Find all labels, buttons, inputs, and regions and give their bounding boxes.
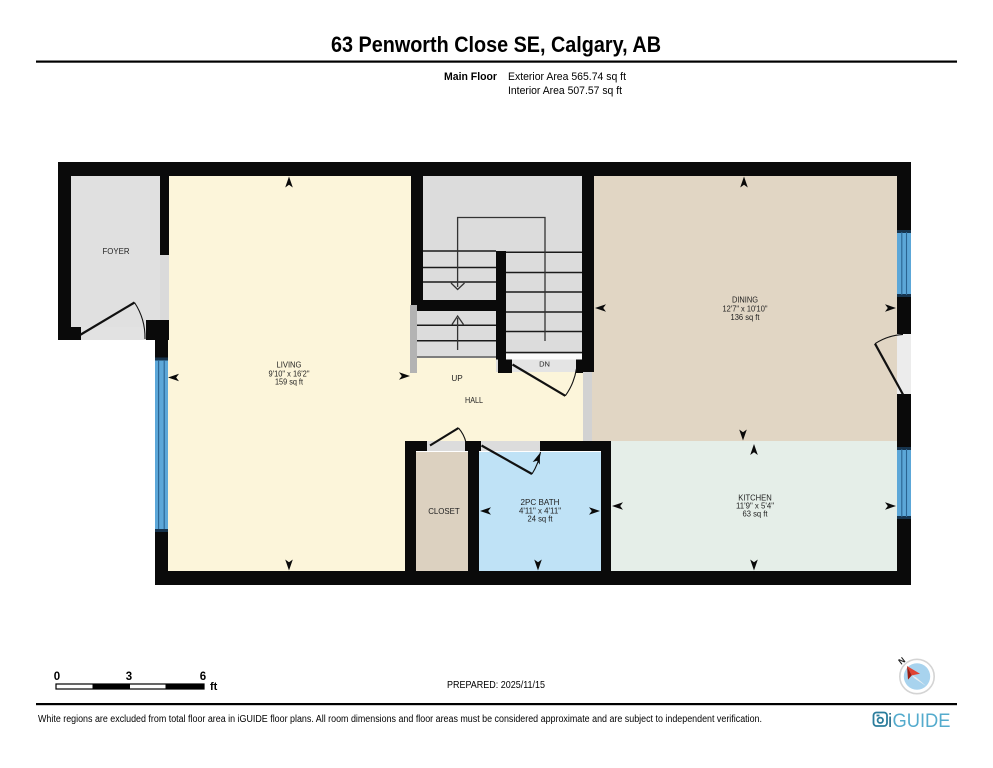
svg-text:136 sq ft: 136 sq ft: [731, 313, 761, 322]
svg-text:159 sq ft: 159 sq ft: [275, 378, 304, 387]
svg-text:6: 6: [200, 671, 206, 683]
svg-text:63 Penworth Close SE, Calgary,: 63 Penworth Close SE, Calgary, AB: [331, 32, 661, 57]
svg-text:White regions are excluded fro: White regions are excluded from total fl…: [38, 714, 762, 725]
svg-text:UP: UP: [451, 374, 463, 383]
svg-text:Exterior Area 565.74 sq ft: Exterior Area 565.74 sq ft: [508, 71, 626, 83]
svg-text:3: 3: [126, 671, 132, 683]
svg-text:0: 0: [54, 671, 60, 683]
svg-text:PREPARED: 2025/11/15: PREPARED: 2025/11/15: [447, 679, 545, 691]
svg-text:ft: ft: [210, 681, 218, 693]
svg-text:63 sq ft: 63 sq ft: [743, 510, 769, 519]
svg-text:FOYER: FOYER: [103, 247, 130, 256]
svg-text:CLOSET: CLOSET: [428, 507, 460, 516]
svg-text:GUIDE: GUIDE: [893, 710, 951, 732]
svg-text:HALL: HALL: [465, 396, 483, 405]
svg-text:Main Floor: Main Floor: [444, 71, 498, 83]
svg-text:24 sq ft: 24 sq ft: [528, 515, 554, 524]
svg-text:LIVING: LIVING: [277, 361, 302, 370]
svg-text:Interior Area 507.57 sq ft: Interior Area 507.57 sq ft: [508, 85, 622, 97]
svg-text:DINING: DINING: [732, 296, 758, 305]
svg-text:DN: DN: [539, 360, 550, 369]
